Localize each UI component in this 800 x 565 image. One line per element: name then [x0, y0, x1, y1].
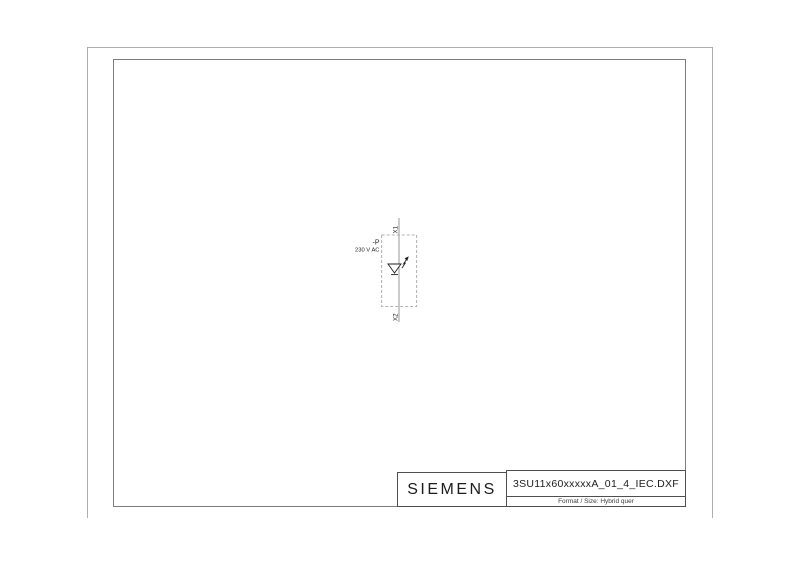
drawing-filename: 3SU11x60xxxxxA_01_4_IEC.DXF [513, 478, 679, 490]
drawing-sheet: X1 X2 -P 230 V AC SIEMENS 3SU11x60xxxxxA… [0, 0, 800, 565]
indicator-lamp-schematic: X1 X2 -P 230 V AC [350, 215, 425, 325]
brand-text: SIEMENS [407, 481, 497, 499]
device-designation-label: -P [373, 240, 380, 247]
light-flash-icon [402, 259, 407, 268]
terminal-label-x2: X2 [393, 313, 400, 321]
light-flash-arrowhead-icon [405, 256, 409, 261]
format-size-text: Format / Size: Hybrid quer [558, 498, 634, 505]
title-block-brand-cell: SIEMENS [397, 472, 507, 507]
terminal-label-x1: X1 [393, 225, 400, 233]
title-block-format-cell: Format / Size: Hybrid quer [506, 496, 686, 507]
title-block-filename-cell: 3SU11x60xxxxxA_01_4_IEC.DXF [506, 470, 686, 497]
voltage-rating-label: 230 V AC [355, 248, 380, 254]
